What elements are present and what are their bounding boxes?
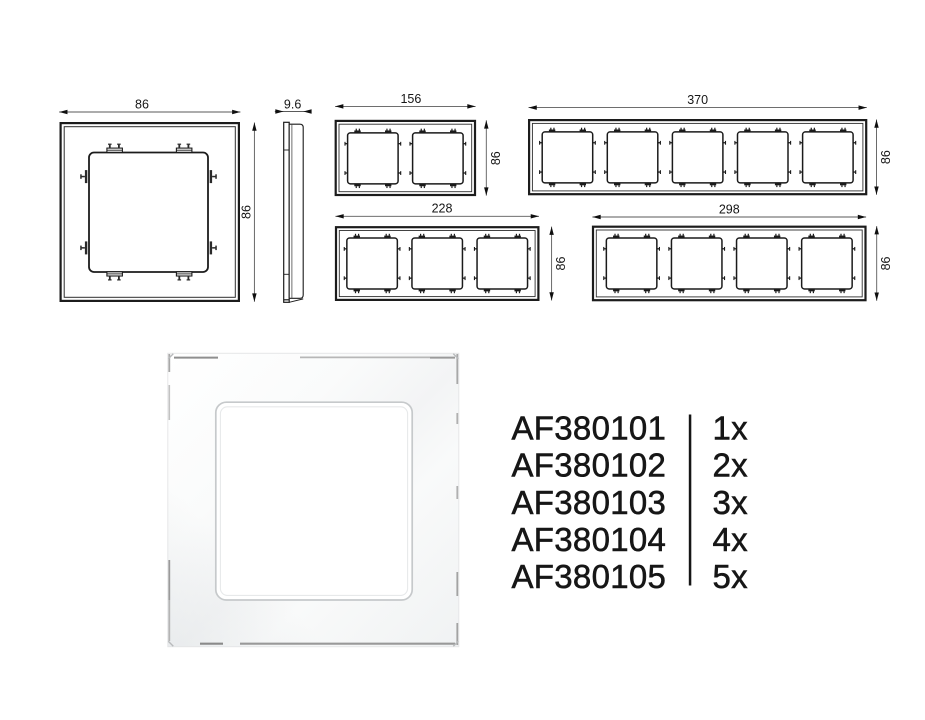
svg-text:86: 86 xyxy=(879,150,893,164)
svg-text:86: 86 xyxy=(879,256,893,270)
svg-text:298: 298 xyxy=(719,202,740,216)
svg-text:4x: 4x xyxy=(713,521,749,558)
svg-text:AF380104: AF380104 xyxy=(512,521,667,558)
svg-text:3x: 3x xyxy=(713,484,749,521)
svg-text:AF380102: AF380102 xyxy=(512,447,667,484)
svg-text:5x: 5x xyxy=(713,558,749,595)
svg-text:2x: 2x xyxy=(713,447,749,484)
svg-text:228: 228 xyxy=(432,202,453,216)
svg-text:1x: 1x xyxy=(713,410,749,447)
svg-text:86: 86 xyxy=(240,205,254,219)
svg-text:86: 86 xyxy=(489,151,503,165)
svg-text:9.6: 9.6 xyxy=(284,97,301,111)
svg-text:AF380101: AF380101 xyxy=(512,410,667,447)
svg-text:AF380105: AF380105 xyxy=(512,558,667,595)
svg-text:370: 370 xyxy=(687,93,708,107)
svg-text:AF380103: AF380103 xyxy=(512,484,667,521)
svg-text:156: 156 xyxy=(400,92,421,106)
svg-text:86: 86 xyxy=(554,257,568,271)
svg-text:86: 86 xyxy=(135,97,149,111)
